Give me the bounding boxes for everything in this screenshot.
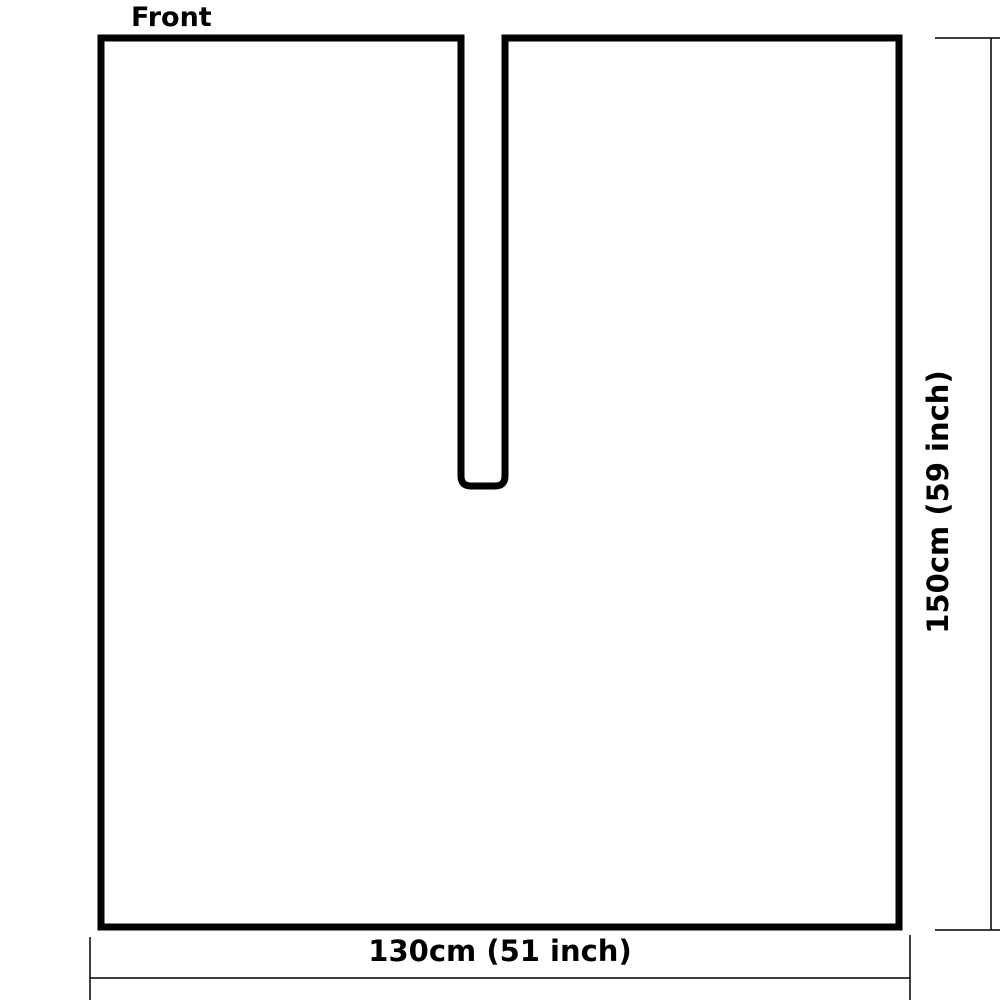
height-dimension-label: 150cm (59 inch) — [921, 370, 955, 633]
pattern-diagram: Front 130cm (51 inch) 150cm (59 inch) — [0, 0, 1000, 1000]
diagram-drawing — [0, 0, 1000, 1000]
front-label: Front — [131, 2, 212, 33]
garment-outline-shape — [101, 38, 899, 927]
width-dimension-label: 130cm (51 inch) — [90, 934, 910, 968]
